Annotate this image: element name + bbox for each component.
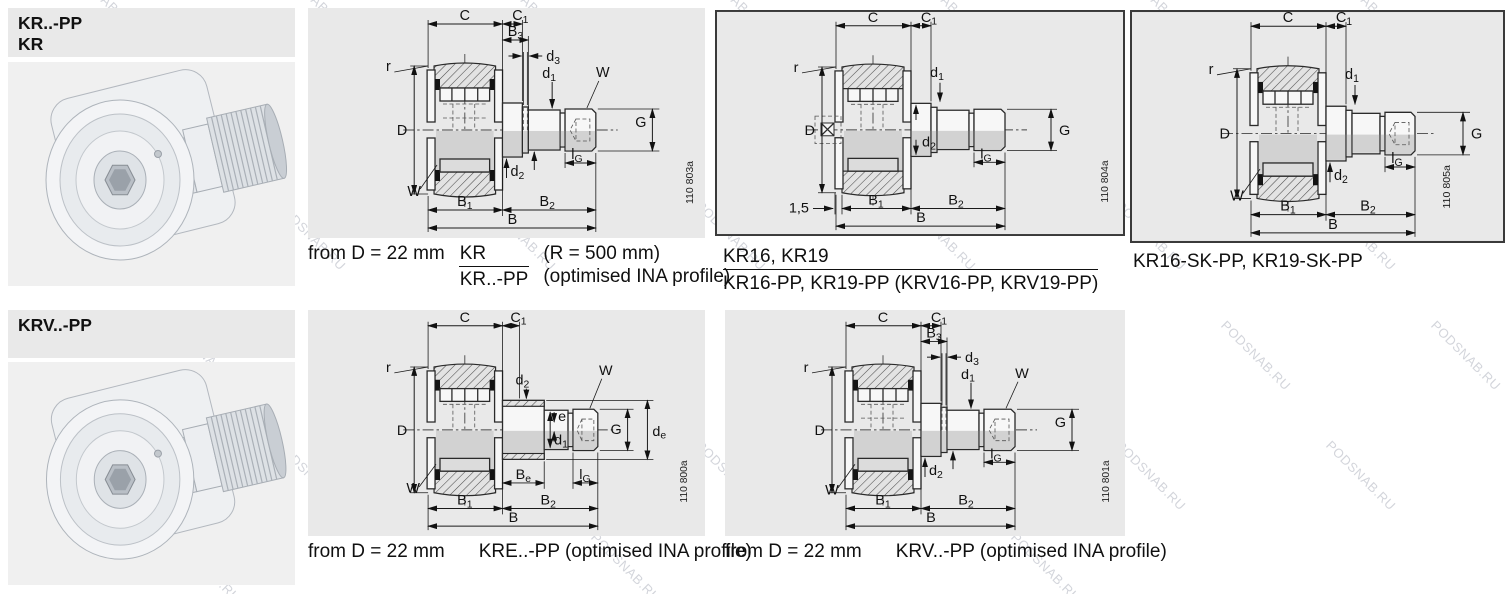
series-header-krv: KRV..-PP — [8, 310, 295, 358]
watermark-text: PODSNAB.RU — [1218, 318, 1294, 394]
technical-drawing-kr16-kr19: C C1 d1 r D G d2 lG 1,5 B1 B2 B 110 804a — [715, 10, 1125, 236]
dim-label-d: D — [815, 423, 825, 439]
dim-label-g: G — [1059, 123, 1070, 139]
dim-label-d: D — [397, 423, 407, 439]
dim-label-c: C — [460, 310, 470, 326]
dim-label-b: B — [926, 510, 936, 526]
dim-label-w: W — [406, 481, 420, 497]
designation-fraction: KR KR..-PP — [459, 243, 530, 290]
caption-kr16-sk: KR16-SK-PP, KR19-SK-PP — [1133, 251, 1363, 272]
dim-label-b: B — [508, 212, 518, 228]
dim-label-e: e — [558, 409, 566, 425]
dim-label-g: G — [1055, 415, 1066, 431]
series-header-kr: KR..-PP KR — [8, 8, 295, 57]
dim-label-g: G — [635, 115, 646, 131]
figure-number: 110 800a — [679, 460, 690, 502]
dim-label-d: D — [1220, 127, 1230, 143]
watermark-text: PODSNAB.RU — [1323, 438, 1399, 514]
dim-label-g: G — [1471, 127, 1482, 143]
dim-label-r: r — [804, 360, 809, 376]
designation-open: KR16, KR19 — [723, 246, 1098, 270]
caption-kre: from D = 22 mm KRE..-PP (optimised INA p… — [308, 541, 752, 562]
bearing-render-kr — [8, 62, 295, 286]
dim-label-g: G — [610, 422, 621, 438]
dim-label-c: C — [868, 10, 878, 26]
dim-label-d: D — [397, 123, 407, 139]
caption-prefix: from D = 22 mm — [725, 541, 862, 562]
dim-label-b: B — [916, 210, 926, 226]
note-profile: (optimised INA profile) — [543, 266, 730, 289]
dim-label-r: r — [386, 59, 391, 75]
designation-kr: KR — [459, 243, 530, 267]
designation-sk: KR16-SK-PP, KR19-SK-PP — [1133, 251, 1363, 272]
dim-label-w: W — [407, 184, 421, 200]
figure-number: 110 803a — [685, 161, 696, 204]
caption-prefix: from D = 22 mm — [308, 541, 445, 562]
product-photo-krv — [8, 362, 295, 585]
technical-drawing-kre-pp: C C1 d2 W r D e d1 G de W Be lG B1 B2 B … — [308, 310, 705, 536]
series-title: KR..-PP — [18, 13, 285, 34]
dim-label-w: W — [1230, 188, 1244, 204]
caption-kr16-kr19: KR16, KR19 KR16-PP, KR19-PP (KRV16-PP, K… — [723, 246, 1098, 294]
designation-sealed: KR16-PP, KR19-PP (KRV16-PP, KRV19-PP) — [723, 270, 1098, 294]
caption-notes: (R = 500 mm) (optimised INA profile) — [543, 243, 730, 289]
bearing-render-krv — [8, 362, 295, 585]
caption-krv: from D = 22 mm KRV..-PP (optimised INA p… — [725, 541, 1167, 562]
figure-number: 110 801a — [1101, 460, 1112, 502]
technical-drawing-kr16-sk-pp: C C1 d1 r D G W d2 lG B1 B2 B 110 805a — [1130, 10, 1505, 243]
dim-label-c: C — [460, 8, 470, 24]
series-title: KRV..-PP — [18, 315, 285, 336]
product-photo-kr — [8, 62, 295, 286]
dim-label-r: r — [794, 60, 799, 76]
dim-label-w: W — [599, 363, 613, 379]
note-radius: (R = 500 mm) — [543, 243, 730, 266]
dim-label-w: W — [596, 65, 610, 81]
figure-number: 110 804a — [1100, 160, 1111, 202]
dim-label-c: C — [878, 310, 888, 326]
series-title: KR — [18, 34, 285, 55]
dim-label-w: W — [825, 483, 839, 499]
dim-label-b: B — [509, 510, 519, 526]
caption-kr: from D = 22 mm KR KR..-PP (R = 500 mm) (… — [308, 243, 730, 290]
dim-label-1-5: 1,5 — [789, 201, 809, 217]
caption-prefix: from D = 22 mm — [308, 243, 445, 264]
designation-kr-pp: KR..-PP — [459, 267, 530, 290]
technical-drawing-krv-pp: C C1 B3 d3 d1 W r D G W d2 lG B1 B2 B 11… — [725, 310, 1125, 536]
catalog-page: PODSNAB.RU PODSNAB.RU PODSNAB.RU PODSNAB… — [0, 0, 1505, 594]
dim-label-r: r — [386, 360, 391, 376]
dim-label-d: D — [805, 123, 815, 139]
technical-drawing-kr-pp: C C1 B3 d3 d1 W r D G W d2 lG B1 B2 B 11… — [308, 8, 705, 238]
designation-kre: KRE..-PP (optimised INA profile) — [479, 541, 752, 562]
watermark-text: PODSNAB.RU — [1428, 318, 1504, 394]
figure-number: 110 805a — [1441, 165, 1453, 209]
dim-label-b: B — [1328, 217, 1338, 233]
dim-label-c: C — [1283, 10, 1293, 26]
designation-krv: KRV..-PP (optimised INA profile) — [896, 541, 1167, 562]
dim-label-w: W — [1015, 366, 1029, 382]
dim-label-r: r — [1209, 62, 1214, 78]
